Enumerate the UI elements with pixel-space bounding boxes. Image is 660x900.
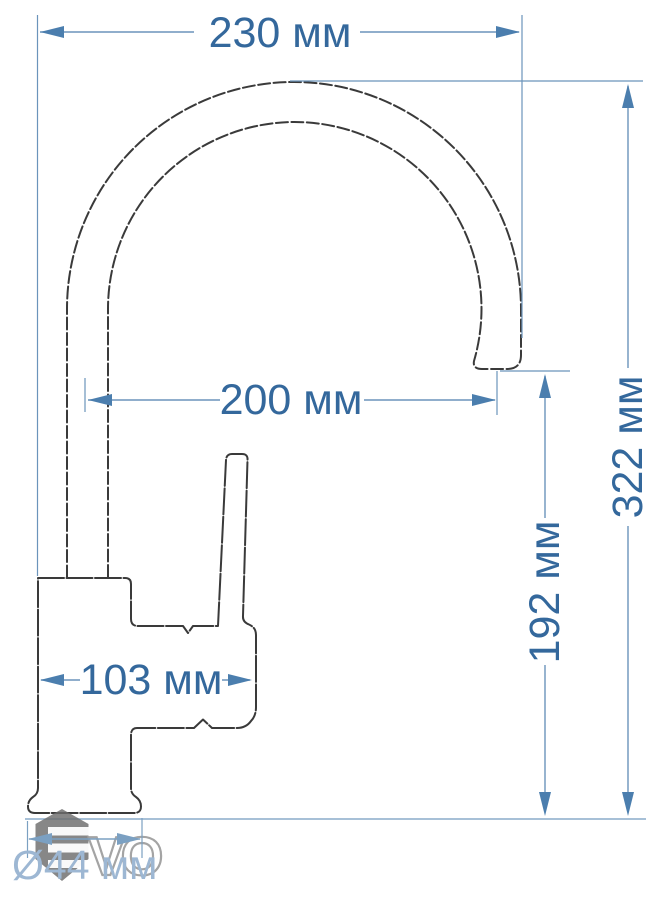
- arrowhead-left: [88, 394, 112, 406]
- dimension-label-total-height: 322 мм: [604, 376, 652, 519]
- arrowhead-down: [622, 792, 634, 816]
- dimension-label-base-diameter: Ø44 мм: [12, 842, 157, 888]
- faucet-drawing-page: 230 мм 200 мм 322 мм 192 мм 103 мм: [0, 0, 660, 900]
- faucet-drawing-canvas: 230 мм 200 мм 322 мм 192 мм 103 мм: [0, 0, 660, 900]
- arrowhead-down: [539, 792, 551, 816]
- arrowhead-left: [40, 674, 64, 686]
- dimension-spout-reach: 200 мм: [85, 371, 497, 424]
- arrowhead-left: [40, 26, 64, 38]
- dimension-label-total-width: 230 мм: [209, 9, 352, 57]
- arrowhead-right: [472, 394, 496, 406]
- dimension-body-length: 103 мм: [40, 656, 252, 704]
- arrowhead-right: [496, 26, 520, 38]
- evo-logo-stripe: [48, 827, 89, 836]
- dimension-spout-height: 192 мм: [500, 371, 570, 816]
- faucet-body-and-handle-outline: [28, 454, 256, 813]
- dimension-total-height: 322 мм: [290, 81, 652, 816]
- dimension-label-spout-reach: 200 мм: [220, 376, 363, 424]
- dimension-label-spout-height: 192 мм: [521, 521, 569, 664]
- faucet-spout-outline: [67, 82, 521, 577]
- arrowhead-up: [539, 374, 551, 398]
- dimension-total-width: 230 мм: [38, 9, 523, 576]
- arrowhead-up: [622, 84, 634, 108]
- dimension-label-body-length: 103 мм: [80, 656, 223, 704]
- arrowhead-right: [228, 674, 252, 686]
